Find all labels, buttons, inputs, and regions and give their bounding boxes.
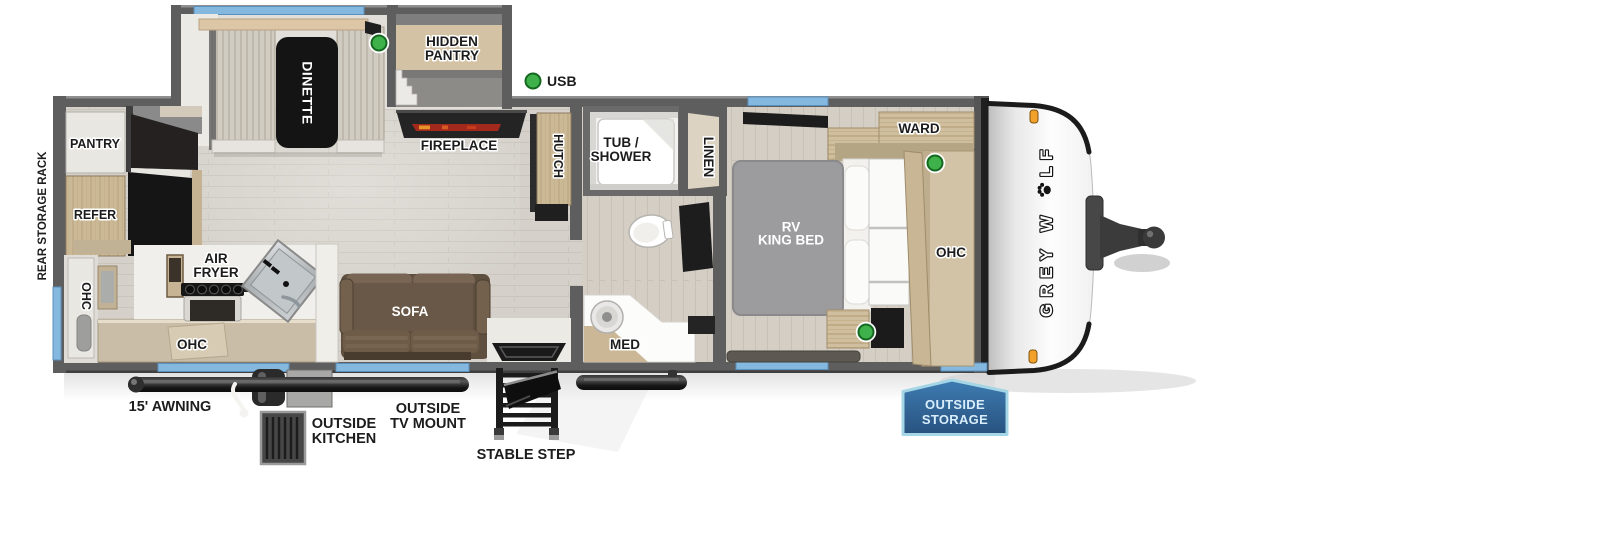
svg-text:STORAGE: STORAGE <box>922 412 988 427</box>
svg-text:FRYER: FRYER <box>193 265 239 280</box>
svg-text:LINEN: LINEN <box>701 137 716 178</box>
svg-text:DINETTE: DINETTE <box>299 61 315 124</box>
svg-text:SHOWER: SHOWER <box>591 149 652 164</box>
svg-text:OUTSIDE: OUTSIDE <box>312 416 377 432</box>
svg-text:15' AWNING: 15' AWNING <box>129 399 212 415</box>
svg-text:GREY W: GREY W <box>1037 209 1056 317</box>
svg-text:HIDDEN: HIDDEN <box>426 34 478 49</box>
svg-text:OHC: OHC <box>177 337 207 352</box>
svg-text:KITCHEN: KITCHEN <box>312 431 376 447</box>
svg-text:REFER: REFER <box>74 208 116 222</box>
svg-text:USB: USB <box>547 73 577 89</box>
svg-text:REAR STORAGE RACK: REAR STORAGE RACK <box>37 151 49 281</box>
svg-text:AIR: AIR <box>204 251 228 266</box>
svg-text:OUTSIDE: OUTSIDE <box>396 401 461 417</box>
svg-text:LF: LF <box>1037 143 1056 177</box>
svg-text:OHC: OHC <box>936 245 966 260</box>
svg-text:TV MOUNT: TV MOUNT <box>390 416 466 432</box>
svg-text:SOFA: SOFA <box>392 304 429 319</box>
svg-text:OUTSIDE: OUTSIDE <box>925 397 985 412</box>
svg-text:MED: MED <box>610 337 640 352</box>
svg-text:KING BED: KING BED <box>758 233 824 248</box>
svg-text:OHC: OHC <box>79 282 93 310</box>
svg-text:HUTCH: HUTCH <box>551 134 565 178</box>
svg-text:STABLE STEP: STABLE STEP <box>477 447 576 463</box>
svg-text:TUB /: TUB / <box>603 135 638 150</box>
svg-text:PANTRY: PANTRY <box>425 48 479 63</box>
svg-text:WARD: WARD <box>898 121 939 136</box>
svg-text:PANTRY: PANTRY <box>70 137 121 151</box>
svg-text:FIREPLACE: FIREPLACE <box>421 138 498 153</box>
